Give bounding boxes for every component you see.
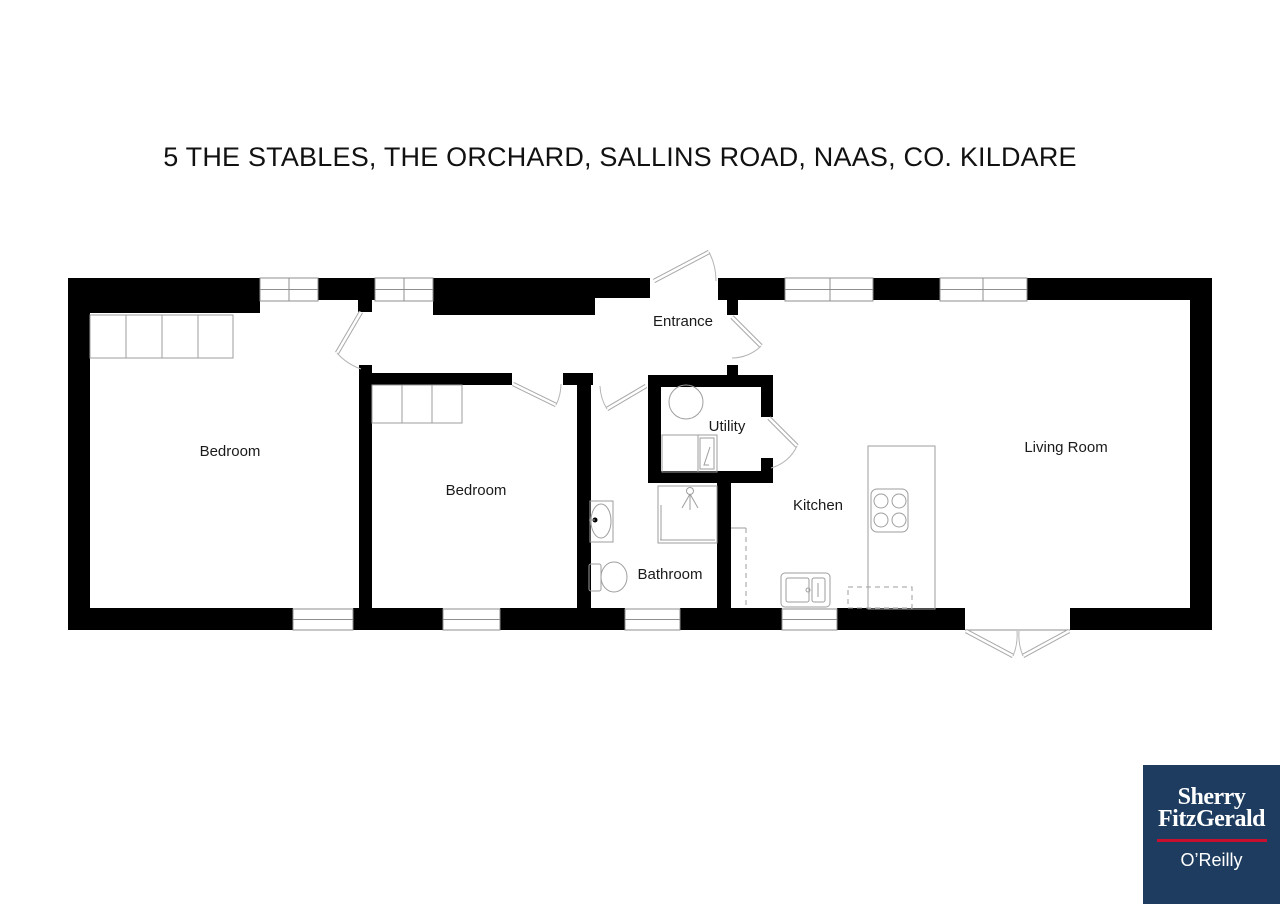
floorplan-page: 5 THE STABLES, THE ORCHARD, SALLINS ROAD… — [0, 0, 1280, 904]
wardrobe — [90, 315, 233, 358]
door-swing-arc — [732, 346, 761, 358]
window — [785, 278, 873, 301]
wall-bottom-segment — [500, 608, 625, 630]
wall-utility-top — [648, 375, 773, 387]
window — [375, 278, 433, 301]
window — [625, 609, 680, 630]
window — [940, 278, 1027, 301]
wall-stub — [358, 298, 372, 312]
door-swing-arc — [600, 386, 607, 409]
washing-machine-icon — [669, 385, 703, 419]
wall-top-segment — [1027, 278, 1212, 300]
floorplan-drawing: Bedroom Bedroom Entrance Utility Bathroo… — [0, 0, 1280, 904]
kitchen-sink-icon — [781, 573, 830, 607]
door-swing-arc — [556, 384, 561, 405]
window — [293, 609, 353, 630]
door-swing-arc — [709, 252, 716, 281]
counter-edge — [731, 528, 746, 608]
bedroom2-door — [513, 384, 561, 405]
wall-utility-bottom — [648, 471, 773, 483]
toilet-icon — [589, 562, 627, 592]
shower-icon — [658, 486, 717, 543]
wall-bathroom-right — [717, 483, 731, 611]
utility-unit-icon — [662, 435, 717, 472]
room-label-bedroom-2: Bedroom — [446, 482, 507, 499]
wall-bottom-segment — [837, 608, 965, 630]
utility-door — [769, 418, 797, 468]
room-label-entrance: Entrance — [653, 313, 713, 330]
wall-stub — [727, 365, 738, 377]
wall-bottom-segment — [680, 608, 782, 630]
interior-walls — [358, 298, 773, 611]
fixtures — [90, 315, 935, 609]
door-swing-arc — [1019, 631, 1023, 656]
room-label-bedroom-1: Bedroom — [200, 443, 261, 460]
window — [443, 609, 500, 630]
wash-basin-icon — [589, 501, 613, 542]
wall-utility-right — [761, 385, 773, 417]
logo-sub-brand: O’Reilly — [1143, 850, 1280, 871]
entrance-front-door — [654, 252, 716, 281]
appliance-outline — [848, 587, 912, 608]
wall-left — [68, 278, 90, 630]
wall-top-segment — [68, 278, 260, 313]
door-swing-arc — [337, 353, 361, 369]
bedroom1-door — [337, 312, 361, 369]
door-swing-arc — [771, 446, 797, 468]
wall-bottom-segment — [68, 608, 293, 630]
wall-top-segment — [718, 278, 785, 300]
wall-top-segment — [318, 278, 375, 300]
room-label-utility: Utility — [709, 418, 746, 435]
wall-top-segment — [595, 278, 650, 298]
wall-top-segment — [873, 278, 940, 300]
wall-bottom-segment — [353, 608, 443, 630]
bathroom-door — [600, 386, 646, 409]
agency-logo: Sherry FitzGerald O’Reilly — [1143, 765, 1280, 904]
door-swing-arc — [1013, 631, 1017, 656]
hall-to-kitchen-door — [732, 317, 761, 358]
logo-brand-line1: Sherry — [1143, 786, 1280, 808]
wall-bottom-segment — [1070, 608, 1212, 630]
hob-icon — [871, 489, 908, 532]
wall-bedroom-divider — [359, 365, 372, 611]
logo-brand-line2: FitzGerald — [1143, 808, 1280, 830]
wall-utility-right — [761, 458, 773, 483]
room-label-bathroom: Bathroom — [637, 566, 702, 583]
wall-utility-left — [648, 375, 661, 483]
logo-divider — [1157, 839, 1267, 842]
wall-top-segment — [433, 278, 595, 315]
french-doors — [965, 630, 1070, 656]
room-label-living-room: Living Room — [1024, 439, 1107, 456]
window — [260, 278, 318, 301]
wall-bedroom2-top — [366, 373, 512, 385]
kitchen-counter — [868, 446, 935, 609]
window — [782, 609, 837, 630]
wardrobe — [372, 385, 462, 423]
room-label-kitchen: Kitchen — [793, 497, 843, 514]
wall-right — [1190, 278, 1212, 630]
wall-stub — [727, 300, 738, 315]
